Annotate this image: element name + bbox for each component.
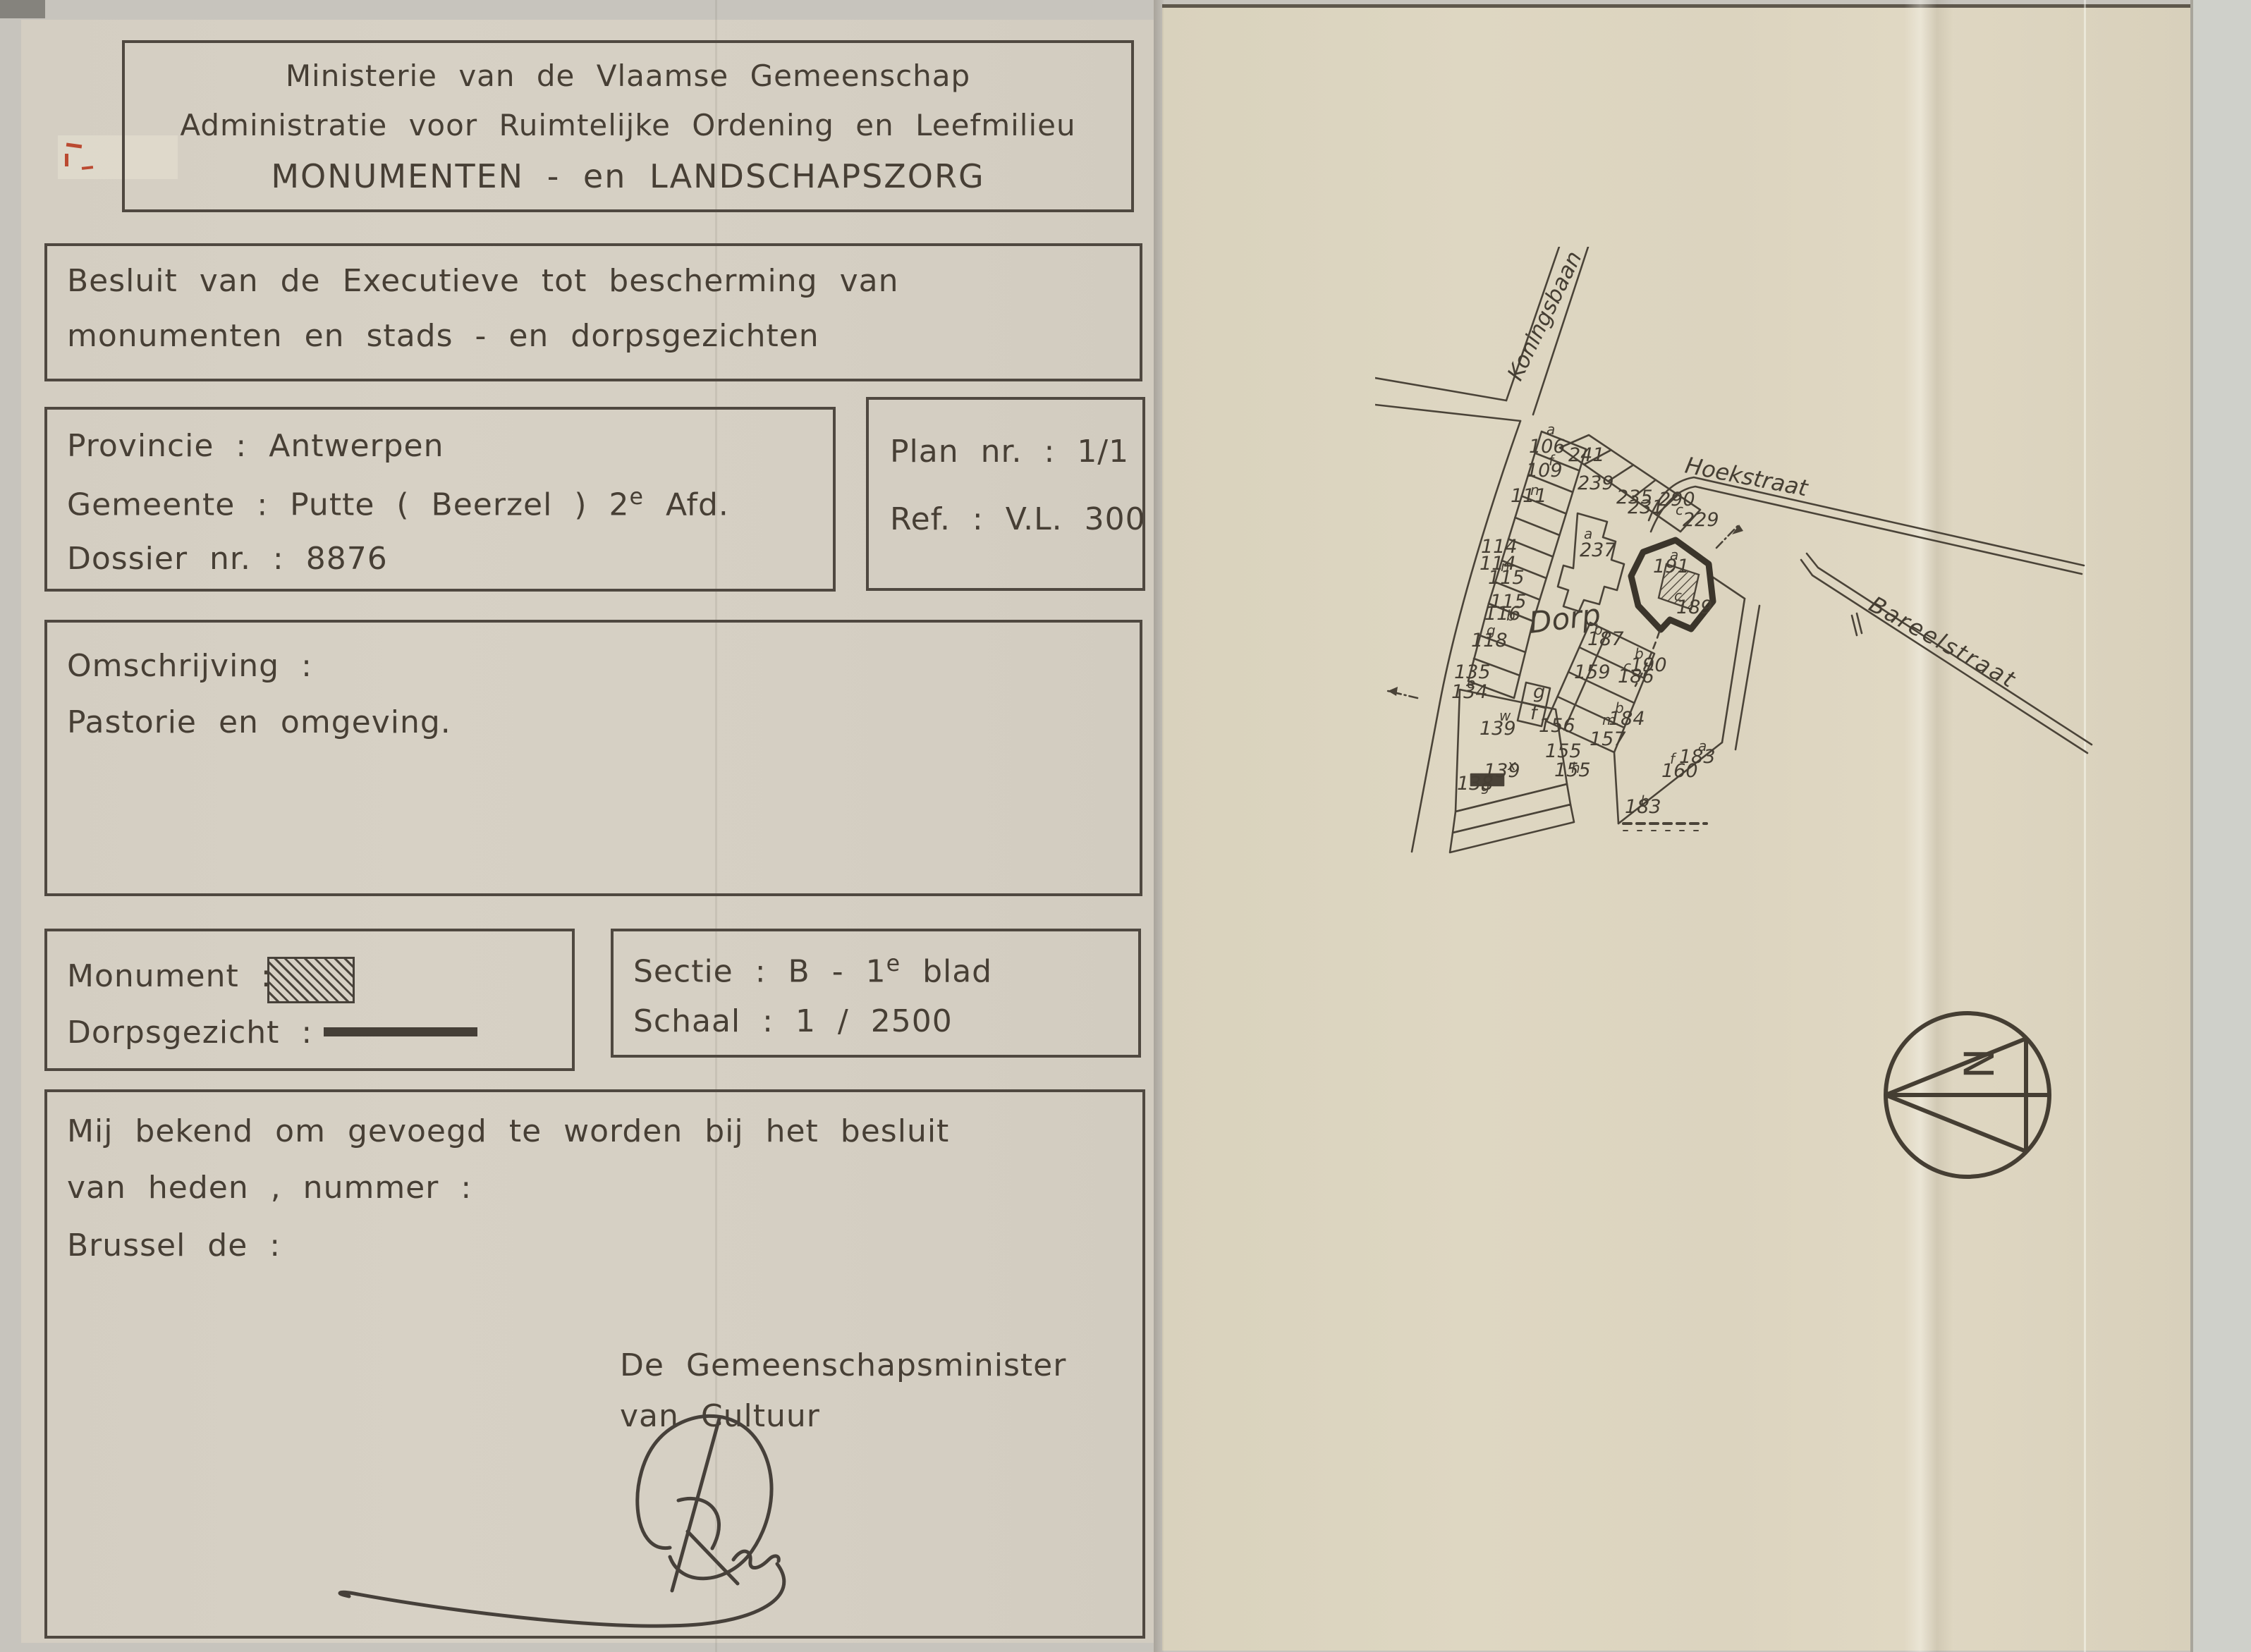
- street-label-koningsbaan: Koningsbaan: [1503, 247, 1587, 385]
- description-value: Pastorie en omgeving.: [67, 704, 451, 740]
- dossier-line: Dossier nr. : 8876: [67, 541, 388, 577]
- administration-line: Administratie voor Ruimtelijke Ordening …: [125, 108, 1131, 142]
- section-line: Sectie : B - 1e blad: [633, 951, 992, 990]
- parcel-label: 183: [1679, 746, 1716, 768]
- parcel-label: 157: [1590, 728, 1626, 750]
- parcel-label: 229: [1683, 509, 1719, 531]
- parcel-label: 187: [1587, 628, 1624, 650]
- parcel-label: 159: [1574, 661, 1611, 683]
- legend-box: Monument : Dorpsgezicht :: [44, 929, 575, 1071]
- parcel-sub: e: [1467, 675, 1475, 692]
- decree-line1: Besluit van de Executieve tot beschermin…: [67, 263, 898, 299]
- parcel-sub: b: [1640, 793, 1649, 809]
- scanned-decree-document: Ministerie van de Vlaamse Gemeenschap Ad…: [0, 0, 2251, 1652]
- plan-box: Plan nr. : 1/1 Ref. : V.L. 300: [866, 397, 1145, 591]
- section-text: Sectie : B - 1: [633, 954, 886, 990]
- scan-corner-artifact: [0, 0, 45, 18]
- header-box: Ministerie van de Vlaamse Gemeenschap Ad…: [122, 40, 1134, 212]
- ministry-line: Ministerie van de Vlaamse Gemeenschap: [125, 59, 1131, 93]
- section-box: Sectie : B - 1e blad Schaal : 1 / 2500: [611, 929, 1141, 1058]
- description-box: Omschrijving : Pastorie en omgeving.: [44, 620, 1142, 896]
- parcel-sub: a: [1698, 738, 1707, 754]
- parcel-label: 241: [1568, 444, 1605, 466]
- parcel-label: 184: [1609, 708, 1645, 730]
- dossier-box: Provincie : Antwerpen Gemeente : Putte (…: [44, 407, 836, 592]
- parcel-sub: g: [1487, 622, 1496, 639]
- closing-line1: Mij bekend om gevoegd te worden bij het …: [67, 1113, 949, 1149]
- north-letter: N: [1956, 1048, 2003, 1079]
- parcel-label: 109: [1526, 460, 1563, 482]
- cadastral-map: Koningsbaan Hoekstraat Bareelstraat Dorp…: [1375, 247, 2116, 860]
- parcel-sub: g: [1481, 778, 1490, 795]
- decree-box: Besluit van de Executieve tot beschermin…: [44, 243, 1142, 381]
- dorpsgezicht-label: Dorpsgezicht :: [67, 1015, 312, 1051]
- scale-line: Schaal : 1 / 2500: [633, 1003, 953, 1039]
- scanner-margin: [2190, 0, 2251, 1652]
- parcel-label: 111: [1511, 485, 1547, 507]
- arrowhead-west: [1388, 687, 1398, 696]
- monument-hatch-swatch: [267, 957, 355, 1003]
- parcel-label: 237: [1580, 539, 1616, 561]
- parcel-label: 239: [1578, 472, 1614, 494]
- street-label-bareelstraat: Bareelstraat: [1865, 591, 2021, 694]
- parcel-sub: h: [1571, 759, 1580, 776]
- parcel-sub: n: [1530, 482, 1539, 498]
- province-line: Provincie : Antwerpen: [67, 428, 444, 464]
- department-line: MONUMENTEN - en LANDSCHAPSZORG: [125, 157, 1131, 195]
- monument-label: Monument :: [67, 958, 272, 994]
- parcel-sub: a: [1670, 546, 1678, 563]
- street-label-hoekstraat: Hoekstraat: [1683, 452, 1810, 502]
- description-label: Omschrijving :: [67, 648, 312, 684]
- parcel-label: 115: [1488, 567, 1525, 589]
- dorpsgezicht-line-swatch: [324, 1027, 477, 1036]
- parcel-sub: b: [1506, 607, 1515, 624]
- closing-line2: van heden , nummer :: [67, 1170, 472, 1206]
- section-sup: e: [886, 951, 901, 977]
- parcel-label: g: [1533, 681, 1545, 703]
- north-arrow: N: [1872, 1000, 2070, 1197]
- parcel-sub: b: [1635, 645, 1644, 662]
- parcel-sub: c: [1674, 587, 1682, 604]
- decree-line2: monumenten en stads - en dorpsgezichten: [67, 318, 819, 354]
- parcel-sub: a: [1584, 525, 1592, 542]
- parcel-sub: c: [1676, 501, 1683, 518]
- closing-line3: Brussel de :: [67, 1228, 281, 1264]
- parcel-sub: a: [1547, 421, 1555, 438]
- plan-number: Plan nr. : 1/1: [890, 434, 1129, 470]
- parcel-label: 156: [1539, 715, 1575, 737]
- red-mark: [65, 154, 68, 166]
- municipality-suffix: Afd.: [644, 487, 729, 523]
- parcel-sub: x: [1507, 757, 1516, 773]
- parcel-sub: w: [1499, 707, 1511, 724]
- plan-ref: Ref. : V.L. 300: [890, 501, 1146, 537]
- parcel-sub: b: [1594, 621, 1603, 638]
- municipality-line: Gemeente : Putte ( Beerzel ) 2e Afd.: [67, 484, 729, 523]
- section-suffix: blad: [901, 954, 992, 990]
- municipality-text: Gemeente : Putte ( Beerzel ) 2: [67, 487, 629, 523]
- municipality-sup: e: [629, 484, 644, 510]
- parcel-label: 106: [1529, 436, 1566, 458]
- parcel-sub: b: [1615, 699, 1624, 716]
- minister-signature: [310, 1375, 889, 1650]
